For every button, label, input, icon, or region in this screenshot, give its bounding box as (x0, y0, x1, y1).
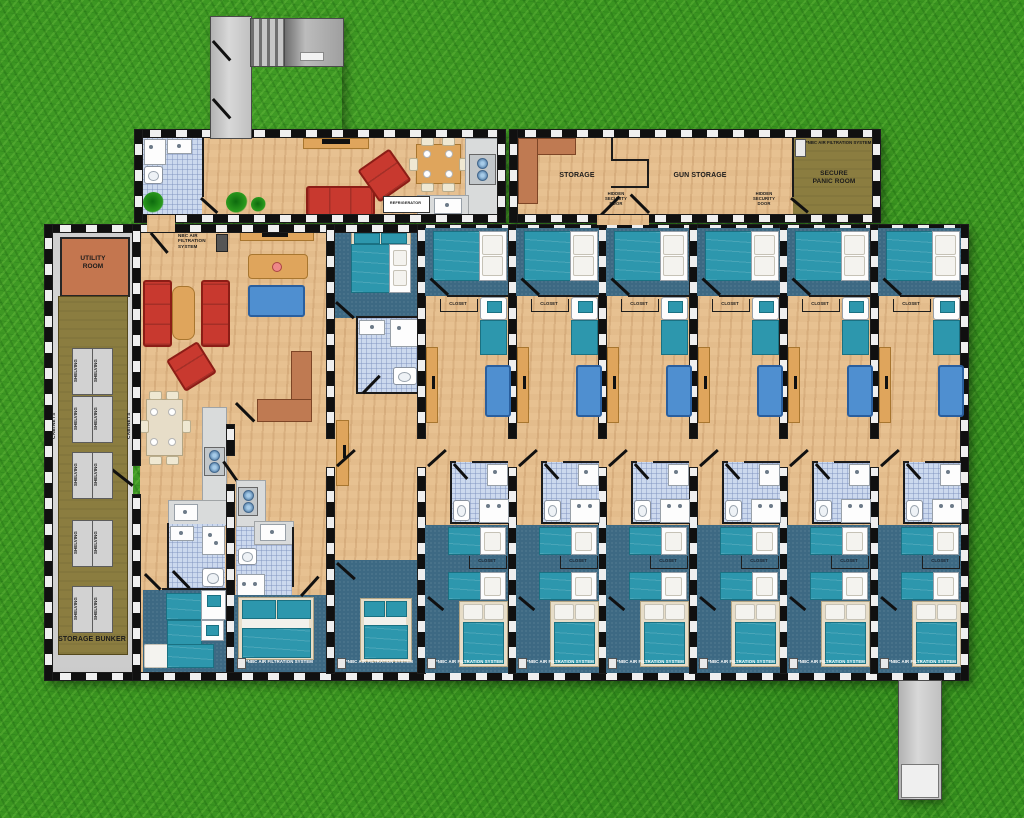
shower (940, 464, 961, 486)
toilet (144, 166, 163, 184)
chair (166, 456, 179, 465)
storage-bunker-label: STORAGE BUNKER (54, 636, 130, 644)
dresser (933, 320, 960, 355)
closet-label: CLOSET (440, 302, 476, 307)
shelving-label: SHELVING (73, 522, 90, 564)
refrigerator-label: REFRIGERATOR (383, 201, 428, 205)
bed-blanket (720, 527, 754, 555)
nbc-label: *NBC AIR FILTRATION SYSTEM (798, 659, 870, 664)
shelving-label: SHELVING (73, 398, 90, 440)
nbc-unit-icon (699, 658, 708, 669)
bed-frame (661, 527, 687, 555)
bed-frame (389, 244, 411, 293)
closet-label: CLOSET (531, 302, 567, 307)
closet-label: CLOSET (893, 302, 929, 307)
bed-blanket (720, 572, 754, 600)
bed-frame (571, 527, 597, 555)
bar-counter (257, 399, 312, 422)
bed-frame (842, 572, 868, 600)
toilet (202, 568, 224, 587)
bed-frame (480, 527, 506, 555)
tv (322, 139, 350, 144)
bathroom-wall (903, 461, 905, 524)
vanity-desk (480, 297, 507, 320)
bed-blanket (795, 231, 843, 281)
partition-wall (647, 159, 649, 188)
wall (780, 468, 787, 673)
tv (613, 376, 616, 389)
pillow (277, 600, 311, 619)
pillow (554, 604, 574, 620)
nbc-unit-icon (518, 658, 527, 669)
nbc-label: *NBC AIR FILTRATION SYSTEM (436, 659, 508, 664)
wall (418, 225, 425, 438)
pillow (663, 256, 684, 276)
tv (794, 376, 797, 389)
residential-container: CLOSET CLOSET *NBC AIR FILTRATION SYSTEM (697, 225, 780, 680)
bathroom-wall (356, 318, 358, 394)
sofa (938, 365, 964, 417)
shelving-unit: SHELVING (72, 452, 93, 499)
shelving-unit: SHELVING (92, 520, 113, 567)
pillow (844, 256, 865, 276)
plate (168, 408, 176, 416)
kitchen-sink (434, 198, 462, 214)
bed-frame (933, 572, 959, 600)
shelving-label: SHELVING (73, 454, 90, 496)
corridor-door-swing (427, 449, 447, 467)
bed-blanket (886, 231, 934, 281)
wall (327, 468, 334, 673)
shelving-unit: SHELVING (92, 586, 113, 633)
pillow (756, 604, 776, 620)
bed-blanket (433, 231, 481, 281)
closet-label: CLOSET (650, 559, 686, 564)
wall (509, 468, 516, 673)
bed-blanket (167, 620, 202, 646)
residential-container: CLOSET CLOSET *NBC AIR FILTRATION SYSTEM (516, 225, 599, 680)
shelving-label: SHELVING (93, 454, 110, 496)
dresser (571, 320, 598, 355)
closet-label: CLOSET (469, 559, 505, 564)
passage (597, 215, 649, 225)
nbc-label: *NBC AIR FILTRATION SYSTEM (527, 659, 599, 664)
storage-shelf (518, 138, 538, 204)
kitchen-sink (260, 524, 286, 541)
bathroom-wall (541, 461, 543, 524)
chair (442, 183, 455, 192)
panic-room-wall (792, 137, 794, 197)
pillow (644, 604, 664, 620)
pillow (354, 233, 380, 244)
bed-frame (842, 527, 868, 555)
residential-container: CLOSET CLOSET *NBC AIR FILTRATION SYSTEM (606, 225, 689, 680)
bathroom-wall (653, 461, 689, 463)
bed-blanket (810, 572, 844, 600)
shelving-unit: SHELVING (92, 396, 113, 443)
pillow (482, 256, 503, 276)
utility-room-label: UTILITY ROOM (60, 255, 126, 270)
bathroom-wall (834, 461, 870, 463)
bed-blanket (539, 527, 573, 555)
tv (523, 376, 526, 389)
nbc-label: *NBC AIR FILTRATION SYSTEM (806, 141, 872, 146)
pillow (242, 600, 276, 619)
bed-blanket (539, 572, 573, 600)
corridor-door-swing (699, 449, 719, 467)
shower (487, 464, 508, 486)
bed-frame (752, 572, 778, 600)
pillow (825, 604, 845, 620)
nbc-label: NBC AIR FILTRATION SYSTEM (178, 233, 216, 249)
bed-blanket (364, 625, 408, 659)
nbc-unit-icon (337, 658, 346, 669)
wall (961, 225, 968, 680)
bed-blanket (614, 231, 662, 281)
bed-blanket (735, 622, 776, 664)
shelving-label: SHELVING (93, 588, 110, 630)
nbc-label: *NBC AIR FILTRATION SYSTEM (708, 659, 780, 664)
bed-blanket (629, 527, 663, 555)
dresser (752, 320, 779, 355)
residential-container: CLOSET CLOSET *NBC AIR FILTRATION SYSTEM (878, 225, 961, 680)
chair (149, 456, 162, 465)
pillow (916, 604, 936, 620)
wall (871, 468, 878, 673)
plant (251, 197, 266, 212)
bed-frame (933, 527, 959, 555)
wall (227, 425, 234, 455)
shower (849, 464, 870, 486)
bed-sheet (242, 619, 309, 628)
entrance-stairs (250, 18, 286, 67)
toilet (725, 500, 742, 521)
bathroom-wall (450, 461, 452, 524)
bathroom-sink (932, 499, 962, 523)
pillow (386, 601, 407, 617)
shelving-unit: SHELVING (72, 348, 93, 395)
bed-blanket (524, 231, 572, 281)
closet-label: CLOSET (741, 559, 777, 564)
bathroom-sink (570, 499, 600, 523)
bathroom-wall (631, 461, 633, 524)
vanity-desk (571, 297, 598, 320)
sofa (485, 365, 511, 417)
toilet (634, 500, 651, 521)
partition-wall (611, 186, 649, 188)
dresser (661, 320, 688, 355)
nbc-unit-icon (427, 658, 436, 669)
washer (237, 574, 265, 596)
shelving-unit: SHELVING (92, 452, 113, 499)
partition-wall (611, 137, 613, 161)
toilet (453, 500, 470, 521)
bed-blanket (916, 622, 957, 664)
bathroom-wall (722, 461, 724, 524)
stove (469, 154, 496, 185)
pillow (937, 604, 957, 620)
toilet (544, 500, 561, 521)
sofa (757, 365, 783, 417)
sofa (201, 280, 230, 347)
pillow (935, 235, 956, 255)
plant (143, 192, 164, 213)
toilet (906, 500, 923, 521)
bed-blanket (351, 244, 391, 293)
sofa (666, 365, 692, 417)
hidden-door-label: HIDDEN SECURITY DOOR (748, 192, 780, 207)
bed-blanket (810, 527, 844, 555)
bathroom-wall (167, 523, 169, 589)
shelving-label: SHELVING (93, 398, 110, 440)
shelving-label: SHELVING (93, 522, 110, 564)
chair (421, 183, 434, 192)
wall (133, 495, 140, 680)
bed-blanket (448, 527, 482, 555)
landing-step (300, 52, 324, 61)
tv (432, 376, 435, 389)
toilet (393, 367, 417, 385)
partition-wall (611, 159, 649, 161)
bathroom-wall (563, 461, 599, 463)
nbc-unit-icon (789, 658, 798, 669)
wall (45, 225, 52, 680)
plate (445, 170, 453, 178)
shelving-unit: SHELVING (92, 348, 113, 395)
closet-label: CLOSET (922, 559, 958, 564)
wall (510, 215, 880, 222)
dresser (480, 320, 507, 355)
pillow (144, 644, 169, 668)
shower (390, 319, 418, 347)
shower (668, 464, 689, 486)
closet-label: CLOSET (802, 302, 838, 307)
shower (144, 139, 166, 165)
pillow (663, 235, 684, 255)
bunker-floorplan: REFRIGERATOR STORAGE HIDDEN SECURITY DOO… (0, 0, 1024, 818)
bed-blanket (167, 644, 214, 668)
bed-blanket (901, 572, 935, 600)
pillow (754, 235, 775, 255)
closet-label: CLOSET (621, 302, 657, 307)
bed-blanket (644, 622, 685, 664)
plate (168, 438, 176, 446)
chair (421, 137, 434, 146)
bed-blanket (901, 527, 935, 555)
closet-label: CLOSET (831, 559, 867, 564)
bed-blanket (242, 628, 311, 658)
bed-blanket (629, 572, 663, 600)
wall (599, 468, 606, 673)
bed-blanket (705, 231, 753, 281)
bathroom-sink (841, 499, 871, 523)
wall (135, 130, 142, 222)
dining-table (416, 144, 461, 184)
plate (150, 438, 158, 446)
corridor-door-swing (789, 449, 809, 467)
vanity-desk (201, 590, 226, 620)
wall (498, 130, 505, 222)
nbc-unit-icon (608, 658, 617, 669)
shelving-unit: SHELVING (72, 396, 93, 443)
chair (166, 391, 179, 400)
plate (150, 408, 158, 416)
shower (578, 464, 599, 486)
bed-frame (480, 572, 506, 600)
nbc-label: *NBC AIR FILTRATION SYSTEM (889, 659, 961, 664)
bathroom-sink (167, 139, 192, 154)
exit-hatch (901, 764, 939, 798)
wall (690, 468, 697, 673)
nbc-unit-icon (216, 234, 228, 252)
shower (202, 526, 225, 555)
shelving-unit: SHELVING (72, 520, 93, 567)
shelving-unit: SHELVING (72, 586, 93, 633)
tv (885, 376, 888, 389)
bathroom-wall (292, 527, 294, 587)
wall (510, 130, 880, 137)
nbc-label: *NBC AIR FILTRATION SYSTEM (346, 659, 418, 664)
entrance-corridor (210, 16, 252, 139)
corridor-door-swing (518, 449, 538, 467)
pillow (575, 604, 595, 620)
bathroom-wall (202, 137, 204, 197)
corridor-door-swing (880, 449, 900, 467)
bathroom-wall (925, 461, 961, 463)
pillow (364, 601, 385, 617)
nbc-unit-icon (795, 139, 806, 157)
kitchen-sink (174, 504, 198, 521)
wall (135, 130, 505, 137)
vanity-desk (933, 297, 960, 320)
bathroom-wall (356, 392, 418, 394)
wall (418, 468, 425, 673)
residential-container: CLOSET CLOSET *NBC AIR FILTRATION SYSTEM (425, 225, 508, 680)
pillow (844, 235, 865, 255)
sofa (576, 365, 602, 417)
nbc-label: *NBC AIR FILTRATION SYSTEM (246, 659, 326, 664)
shelving-label: SHELVING (73, 588, 90, 630)
bed-frame (571, 572, 597, 600)
pillow (735, 604, 755, 620)
bathroom-sink (359, 320, 385, 335)
bathroom-wall (472, 461, 508, 463)
pillow (463, 604, 483, 620)
wall (510, 130, 517, 222)
bed-frame (752, 527, 778, 555)
bed-blanket (463, 622, 504, 664)
vanity-desk (661, 297, 688, 320)
tv (704, 376, 707, 389)
bathroom-wall (812, 461, 814, 524)
nbc-label: *NBC AIR FILTRATION SYSTEM (617, 659, 689, 664)
pillow (484, 604, 504, 620)
chair (442, 137, 455, 146)
plant (226, 192, 248, 213)
toilet (238, 548, 257, 565)
cabinets-label: CABINETS (51, 395, 60, 457)
sofa (847, 365, 873, 417)
chair (140, 420, 149, 433)
chair (409, 158, 418, 171)
bathroom-sink (170, 526, 194, 541)
pillow (573, 256, 594, 276)
chair (149, 391, 162, 400)
bathroom-sink (660, 499, 690, 523)
plate (423, 170, 431, 178)
pillow (846, 604, 866, 620)
closet-label: CLOSET (712, 302, 748, 307)
nbc-unit-icon (237, 658, 246, 669)
shelving-label: SHELVING (73, 350, 90, 392)
bathroom-sink (479, 499, 509, 523)
bed-blanket (554, 622, 595, 664)
plate (445, 150, 453, 158)
pillow (754, 256, 775, 276)
wall (327, 225, 334, 438)
vanity-desk (201, 620, 224, 641)
sofa (248, 285, 305, 317)
gun-storage-label: GUN STORAGE (650, 172, 750, 180)
sofa (306, 186, 375, 216)
stove (238, 487, 258, 516)
pillow (381, 233, 407, 244)
pillow (573, 235, 594, 255)
chair (182, 420, 191, 433)
residential-container: CLOSET CLOSET *NBC AIR FILTRATION SYSTEM (787, 225, 870, 680)
toilet (815, 500, 832, 521)
bed-blanket (166, 593, 202, 620)
bathroom-wall (744, 461, 780, 463)
wall (227, 485, 234, 673)
vanity-desk (752, 297, 779, 320)
bed-blanket (825, 622, 866, 664)
storage-label: STORAGE (537, 172, 617, 180)
vanity-desk (842, 297, 869, 320)
pillow (482, 235, 503, 255)
vase (272, 262, 282, 272)
wall (133, 225, 140, 465)
plate (423, 150, 431, 158)
panic-room-label: SECURE PANIC ROOM (798, 170, 870, 185)
nbc-unit-icon (880, 658, 889, 669)
bed-blanket (448, 572, 482, 600)
bathroom-sink (751, 499, 781, 523)
corridor-door-swing (608, 449, 628, 467)
shower (759, 464, 780, 486)
coffee-table (172, 286, 195, 340)
pillow (935, 256, 956, 276)
wall (873, 130, 880, 222)
tv (262, 232, 288, 237)
bed-sheet (364, 617, 406, 625)
closet-label: CLOSET (560, 559, 596, 564)
pillow (665, 604, 685, 620)
sofa (143, 280, 172, 347)
bed-frame (661, 572, 687, 600)
wall (135, 215, 505, 222)
dresser (842, 320, 869, 355)
passage (147, 215, 175, 232)
shelving-label: SHELVING (93, 350, 110, 392)
